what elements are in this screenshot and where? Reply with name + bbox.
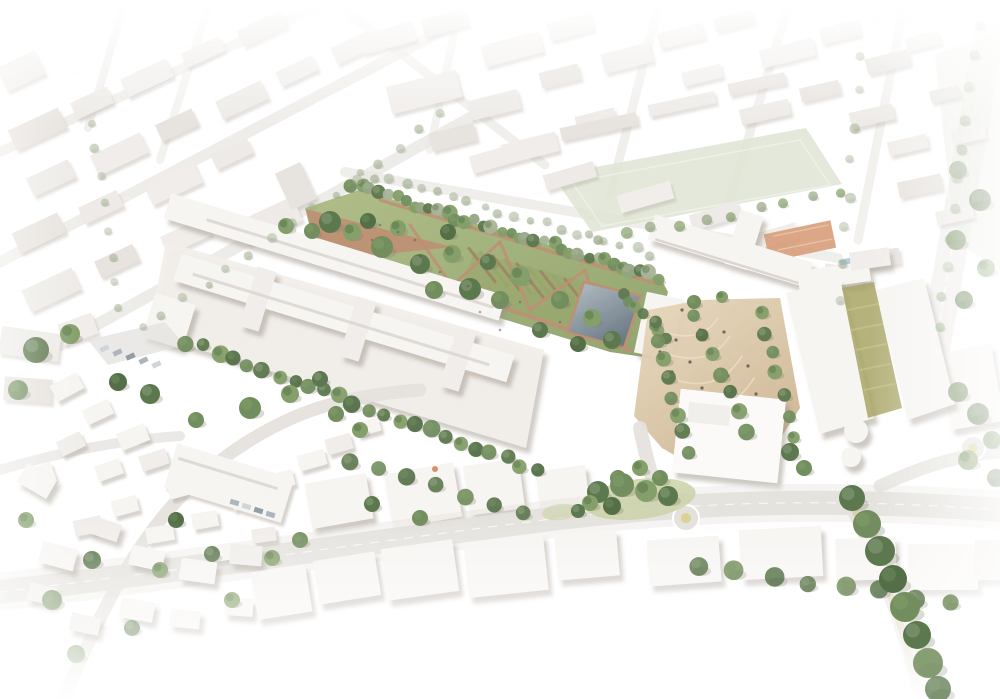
wash: [0, 0, 1000, 699]
aerial-masterplan-rendering: [0, 0, 1000, 699]
fade-overlay: [0, 0, 1000, 699]
rendering-canvas: [0, 0, 1000, 699]
